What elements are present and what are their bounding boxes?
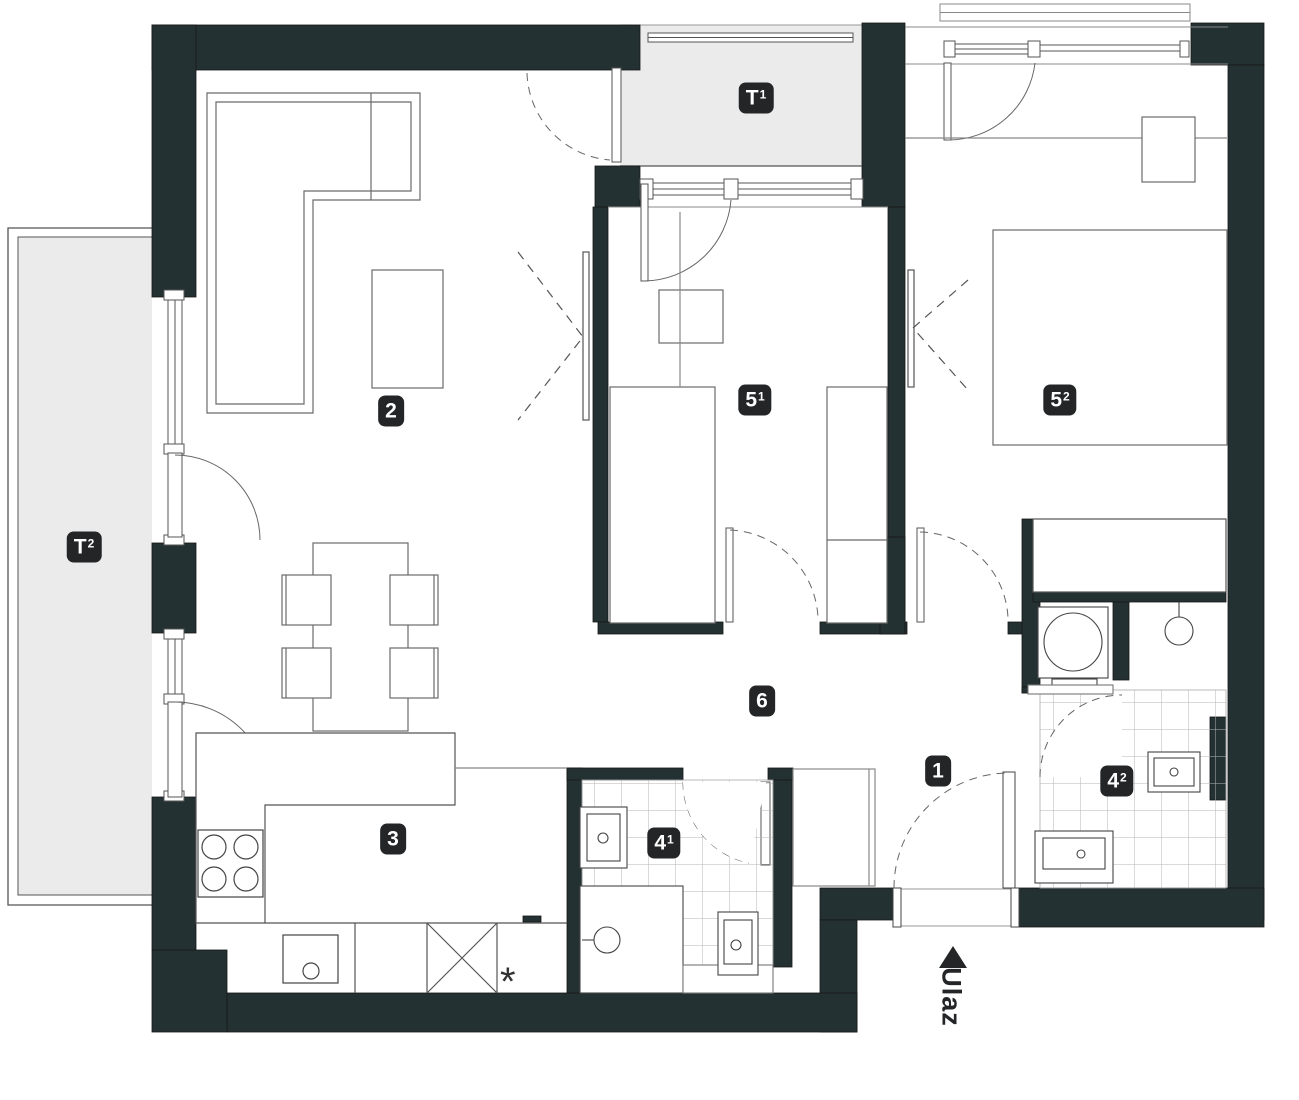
room-label-4-1-bathroom: 41 [647, 828, 680, 859]
bed-bedroom52 [993, 230, 1227, 445]
entrance-opening [897, 889, 1013, 926]
kitchen-sink [283, 935, 338, 983]
closet-entry [793, 769, 875, 886]
room-label-1-entry: 1 [925, 756, 951, 787]
door-bedroom51-leaf [726, 528, 733, 622]
floor-plan-drawing: * [0, 0, 1299, 1100]
entrance-arrow-icon [939, 946, 967, 968]
tv-panel-bedroom52 [908, 270, 914, 387]
balcony-door-bedroom51-leaf [641, 184, 648, 281]
room-label-2-living: 2 [378, 396, 404, 427]
balcony-door-living-1-swing [175, 455, 260, 540]
floor-plan: * T1 T2 2 3 41 42 51 52 6 1 Ulaz [0, 0, 1299, 1100]
appliance-asterisk: * [500, 960, 516, 1004]
chair [282, 648, 331, 698]
room-label-terrace-t1: T1 [739, 83, 774, 114]
balcony-door-bedroom52-swing [948, 63, 1035, 140]
entrance-label: Ulaz [936, 967, 967, 1027]
shower-drain [594, 927, 620, 953]
wall-left-upper [152, 25, 196, 297]
entrance-door-swing [894, 773, 1009, 888]
door-bedroom51-swing [730, 530, 818, 618]
wardrobe-mark-bedroom52 [913, 280, 968, 390]
balcony-door-t1-leaf [612, 68, 621, 162]
wall-bottom [227, 993, 857, 1032]
door-bedroom52-leaf [917, 528, 924, 622]
desk-bedroom51 [659, 290, 723, 343]
balcony-door-t1-swing [527, 73, 610, 160]
tv-panel-living [583, 252, 589, 420]
wall-top [152, 25, 640, 70]
bed-bedroom51 [610, 387, 715, 623]
room-label-6-hall: 6 [749, 686, 775, 717]
dishwasher [427, 923, 497, 993]
wardrobe-mark-living [518, 252, 583, 420]
terrace-t2-floor [8, 228, 152, 905]
balcony-door-bedroom52-leaf [944, 63, 951, 140]
closet-bedroom52 [1033, 519, 1226, 592]
toilet-bathroom42 [1165, 617, 1193, 645]
nightstand-bedroom52 [1142, 117, 1195, 182]
chair [282, 575, 331, 625]
dining-table [313, 543, 408, 731]
wardrobe-bedroom51 [827, 387, 887, 623]
wall-living-bedroom51 [593, 207, 608, 622]
entrance-door-leaf [1003, 772, 1015, 888]
wall-right [1228, 65, 1264, 920]
room-label-4-2-bathroom: 42 [1100, 766, 1133, 797]
coffee-table [372, 270, 443, 388]
door-bedroom52-swing [920, 532, 1008, 618]
washing-machine [1038, 607, 1108, 678]
room-label-3-kitchen: 3 [380, 824, 406, 855]
balcony-door-bedroom51-swing [644, 200, 731, 281]
balcony-door-living-1-leaf [168, 453, 182, 537]
balcony-door-living-2-leaf [168, 702, 182, 797]
room-label-5-1-bedroom: 51 [738, 385, 771, 416]
stove [198, 830, 263, 897]
room-label-terrace-t2: T2 [67, 532, 102, 563]
chair [390, 648, 438, 698]
chair [390, 575, 438, 625]
room-label-5-2-bedroom: 52 [1043, 385, 1076, 416]
